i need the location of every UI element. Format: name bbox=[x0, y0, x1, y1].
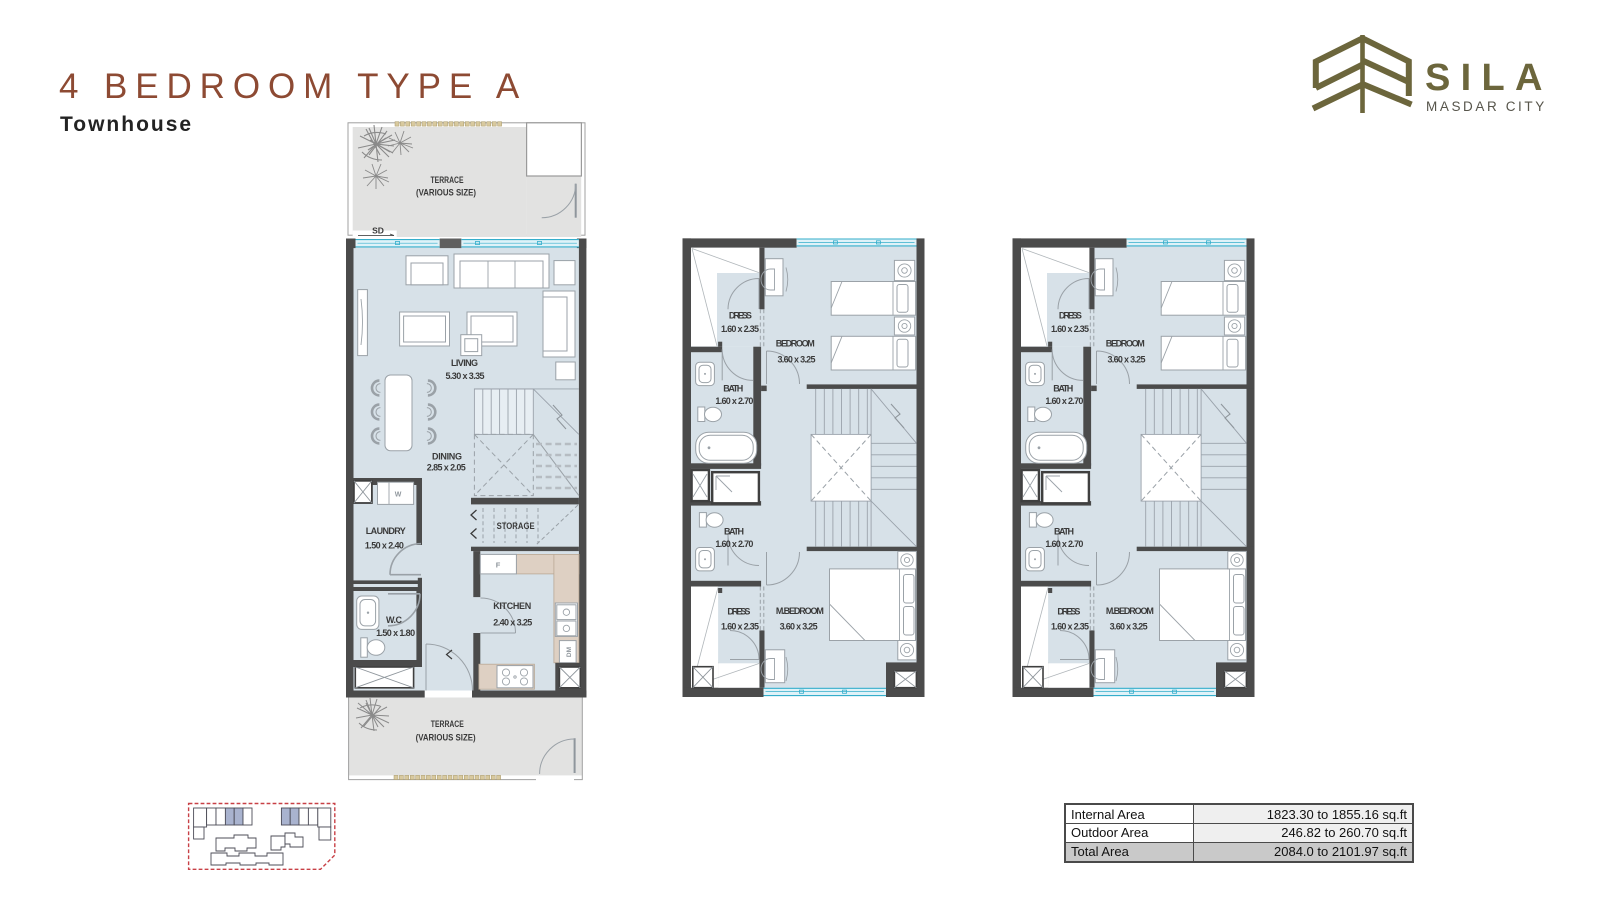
svg-text:LIVING: LIVING bbox=[451, 358, 478, 368]
svg-text:3.60 x 3.25: 3.60 x 3.25 bbox=[778, 354, 816, 364]
svg-text:BATH: BATH bbox=[724, 527, 744, 537]
svg-text:DINING: DINING bbox=[432, 452, 462, 462]
svg-text:(VARIOUS SIZE): (VARIOUS SIZE) bbox=[416, 732, 476, 743]
svg-text:TERRACE: TERRACE bbox=[431, 175, 464, 186]
svg-text:BEDROOM: BEDROOM bbox=[776, 339, 815, 349]
svg-text:KITCHEN: KITCHEN bbox=[493, 601, 531, 611]
svg-text:TERRACE: TERRACE bbox=[431, 719, 464, 730]
svg-text:2.40 x 3.25: 2.40 x 3.25 bbox=[493, 618, 532, 628]
svg-text:(VARIOUS SIZE): (VARIOUS SIZE) bbox=[416, 188, 476, 199]
svg-text:1.60 x 2.70: 1.60 x 2.70 bbox=[715, 539, 753, 549]
svg-text:STORAGE: STORAGE bbox=[497, 521, 535, 531]
svg-text:1.60 x 2.35: 1.60 x 2.35 bbox=[721, 622, 759, 632]
svg-text:3.60 x 3.25: 3.60 x 3.25 bbox=[780, 622, 818, 632]
svg-text:W.C: W.C bbox=[386, 615, 403, 625]
svg-text:MASDAR CITY: MASDAR CITY bbox=[1426, 99, 1547, 114]
svg-text:2.85 x 2.05: 2.85 x 2.05 bbox=[427, 463, 466, 473]
svg-text:W: W bbox=[395, 492, 402, 499]
svg-text:DM: DM bbox=[566, 647, 573, 657]
svg-text:1.60 x 2.70: 1.60 x 2.70 bbox=[715, 396, 753, 406]
svg-text:F: F bbox=[496, 561, 501, 570]
svg-text:LAUNDRY: LAUNDRY bbox=[366, 526, 406, 536]
svg-text:SILA: SILA bbox=[1425, 57, 1553, 99]
svg-text:DRESS: DRESS bbox=[727, 607, 750, 617]
svg-text:BATH: BATH bbox=[723, 383, 743, 393]
svg-text:DRESS: DRESS bbox=[729, 311, 752, 321]
svg-text:SD: SD bbox=[372, 226, 384, 236]
svg-text:1.60 x 2.35: 1.60 x 2.35 bbox=[721, 324, 759, 334]
svg-text:M.BEDROOM: M.BEDROOM bbox=[776, 606, 824, 616]
svg-text:5.30 x 3.35: 5.30 x 3.35 bbox=[446, 371, 485, 381]
svg-text:1.50 x 1.80: 1.50 x 1.80 bbox=[376, 628, 415, 638]
svg-text:1.50 x 2.40: 1.50 x 2.40 bbox=[365, 541, 404, 551]
